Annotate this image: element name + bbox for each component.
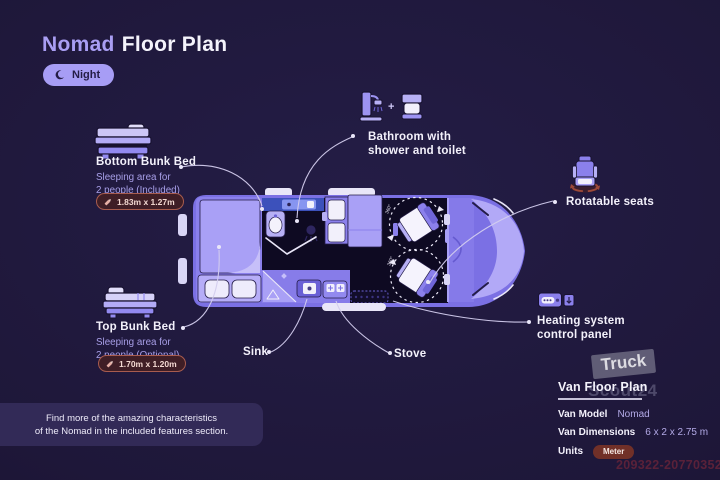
heating-label: Heating system control panel (537, 315, 625, 342)
spec-label: Units (558, 446, 583, 457)
bunk-bed-area (196, 197, 262, 303)
bottom-bunk-dimensions: 1.83m x 1.27m (117, 197, 175, 207)
plus-sign: + (388, 101, 394, 113)
top-bunk-heading: Top Bunk Bed (96, 321, 176, 333)
spec-panel-title: Van Floor Plan (558, 380, 708, 394)
shower-and-toilet-icons: + (358, 90, 428, 124)
heating-label-line2: control panel (537, 329, 625, 343)
spec-value: 6 x 2 x 2.75 m (645, 427, 708, 438)
footer-note-line2: of the Nomad in the included features se… (35, 425, 228, 438)
spec-panel-underline (558, 398, 642, 400)
bottom-bunk-desc-line1: Sleeping area for (96, 172, 180, 185)
rotatable-seat-icon (566, 154, 604, 194)
bathroom-label-line1: Bathroom with (368, 130, 466, 144)
page-title: NomadFloor Plan (42, 33, 227, 57)
listing-ref-number: 209322-20770352 (616, 458, 720, 472)
night-mode-toggle[interactable]: Night (43, 64, 114, 86)
rear-door-handle (178, 258, 187, 284)
pencil-icon (105, 359, 115, 369)
watermark-truck: Truck (591, 349, 657, 379)
top-bunk-desc-line1: Sleeping area for (96, 337, 179, 350)
pillow (205, 280, 229, 298)
bottom-bunk-dimensions-badge: 1.83m x 1.27m (96, 193, 184, 210)
footer-note-line1: Find more of the amazing characteristics (46, 412, 217, 425)
heater-step-grill (351, 291, 388, 303)
units-meter-badge[interactable]: Meter (593, 445, 634, 459)
rear-door-handle (178, 214, 187, 236)
wardrobe (322, 197, 348, 244)
pencil-icon (103, 197, 113, 207)
title-rest: Floor Plan (122, 33, 228, 56)
top-bunk-dimensions-badge: 1.70m x 1.20m (98, 355, 186, 372)
top-bunk-dimensions: 1.70m x 1.20m (119, 359, 177, 369)
spec-row-units: Units Meter (558, 445, 708, 459)
entry-step (322, 303, 386, 311)
bathroom-label-line2: shower and toilet (368, 144, 466, 158)
night-mode-label: Night (72, 69, 100, 81)
moon-icon (54, 69, 66, 81)
heating-label-line1: Heating system (537, 315, 625, 329)
title-brand: Nomad (42, 33, 115, 56)
sink-label: Sink (243, 346, 268, 358)
spec-row-van-model: Van Model Nomad (558, 409, 708, 420)
pillow (232, 280, 256, 298)
heating-control-panel-icon (538, 292, 575, 309)
spec-value: Nomad (617, 409, 649, 420)
cabinet (348, 195, 382, 247)
stove-label: Stove (394, 348, 426, 360)
floor-plan-infographic: Truck Scout24 209322-20770352 NomadFloor… (0, 0, 720, 480)
bunk-bed-icon (100, 284, 160, 320)
rotatable-seats-label: Rotatable seats (566, 196, 654, 208)
footer-note: Find more of the amazing characteristics… (0, 403, 263, 446)
spec-row-van-dimensions: Van Dimensions 6 x 2 x 2.75 m (558, 427, 708, 438)
sink (297, 280, 321, 297)
bathroom-label: Bathroom with shower and toilet (368, 130, 466, 158)
bottom-bunk-heading: Bottom Bunk Bed (96, 156, 196, 168)
van-floor-plan: 360° 360° (176, 186, 536, 316)
spec-label: Van Dimensions (558, 427, 635, 438)
spec-label: Van Model (558, 409, 607, 420)
stove (323, 281, 347, 298)
bunk-bed-icon (92, 122, 154, 160)
van-spec-panel: Van Floor Plan Van Model Nomad Van Dimen… (558, 380, 708, 459)
